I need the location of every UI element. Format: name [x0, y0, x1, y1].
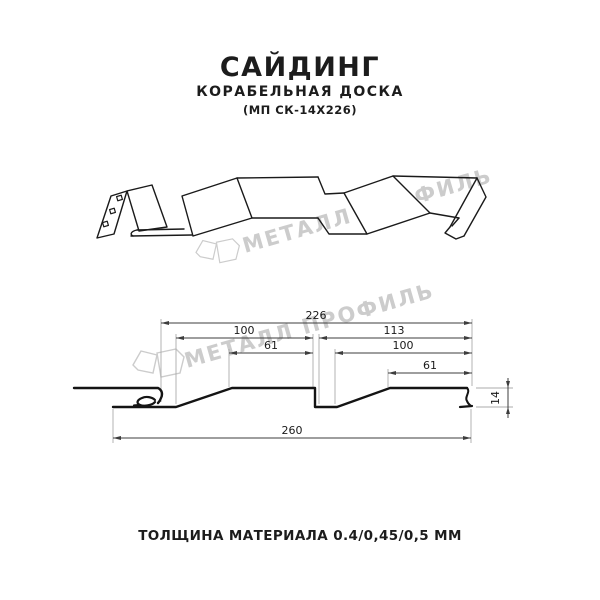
- dim-61-right-label: 61: [423, 359, 437, 372]
- dimension-arrowheads: [113, 321, 510, 440]
- dim-100-right-label: 100: [393, 339, 414, 352]
- dim-113-label: 113: [384, 324, 405, 337]
- dim-61-left-label: 61: [264, 339, 278, 352]
- section-dimension-lines: [113, 323, 508, 438]
- dim-14-label: 14: [489, 391, 502, 405]
- dim-226-label: 226: [306, 309, 327, 322]
- dim-100-left-label: 100: [234, 324, 255, 337]
- material-thickness-note: ТОЛЩИНА МАТЕРИАЛА 0.4/0,45/0,5 ММ: [0, 528, 600, 544]
- section-profile-outline: [74, 388, 472, 407]
- brand-logo-icon: [196, 239, 239, 263]
- technical-drawing-canvas: МЕТАЛЛ ПРОФИЛЬ МЕТАЛЛ ПРОФИЛЬ: [0, 0, 600, 600]
- dim-260-label: 260: [282, 424, 303, 437]
